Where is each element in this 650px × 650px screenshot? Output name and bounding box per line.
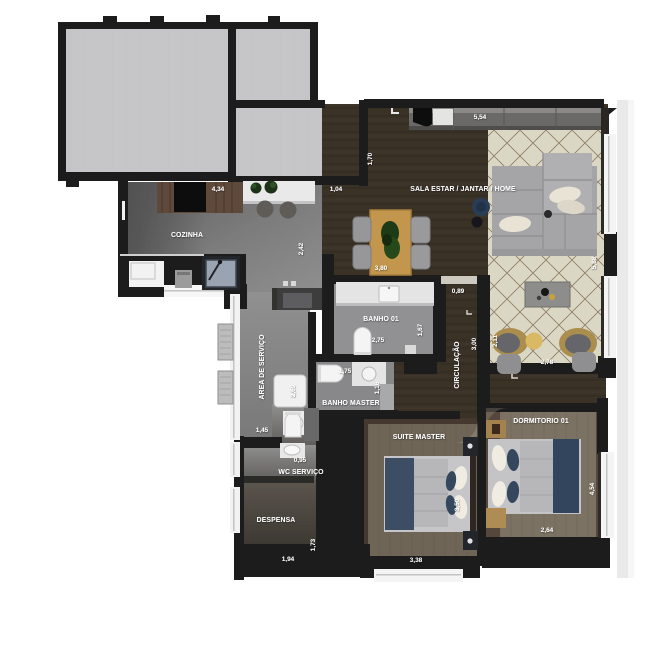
svg-text:4,54: 4,54 [589,482,596,495]
svg-text:DORMITORIO 01: DORMITORIO 01 [513,418,569,425]
svg-text:BANHO MASTER: BANHO MASTER [322,400,379,407]
svg-text:1,45: 1,45 [256,427,269,434]
svg-text:AREA DE SERVIÇO: AREA DE SERVIÇO [259,334,266,400]
svg-text:0,95: 0,95 [294,457,307,464]
svg-text:5,54: 5,54 [474,114,487,121]
svg-text:1,67: 1,67 [417,323,424,336]
svg-text:2,69: 2,69 [290,384,297,397]
svg-text:3,80: 3,80 [375,265,388,272]
svg-text:3,38: 3,38 [410,557,423,564]
svg-text:5,88: 5,88 [591,256,598,269]
svg-text:SUITE MASTER: SUITE MASTER [393,434,446,441]
svg-text:BANHO 01: BANHO 01 [363,316,399,323]
svg-text:SALA ESTAR / JANTAR / HOME: SALA ESTAR / JANTAR / HOME [410,186,516,193]
svg-text:0,89: 0,89 [452,288,465,295]
svg-text:2,75: 2,75 [372,337,385,344]
svg-text:2,11: 2,11 [492,335,499,348]
svg-text:1,04: 1,04 [330,186,343,193]
svg-text:DESPENSA: DESPENSA [257,517,296,524]
svg-text:CIRCULAÇÃO: CIRCULAÇÃO [452,341,461,389]
svg-text:3,00: 3,00 [471,337,478,350]
svg-text:1,73: 1,73 [310,538,317,551]
svg-text:1,16: 1,16 [374,381,381,394]
svg-text:4,34: 4,34 [212,186,225,193]
svg-text:1,70: 1,70 [367,152,374,165]
svg-text:3,50: 3,50 [454,498,461,511]
svg-text:1,94: 1,94 [282,556,295,563]
svg-text:COZINHA: COZINHA [171,232,203,239]
svg-text:2,42: 2,42 [298,242,305,255]
svg-text:WC SERVIÇO: WC SERVIÇO [278,469,324,476]
svg-text:1,75: 1,75 [339,368,352,375]
svg-text:2,78: 2,78 [541,359,554,366]
svg-text:2,64: 2,64 [541,527,554,534]
